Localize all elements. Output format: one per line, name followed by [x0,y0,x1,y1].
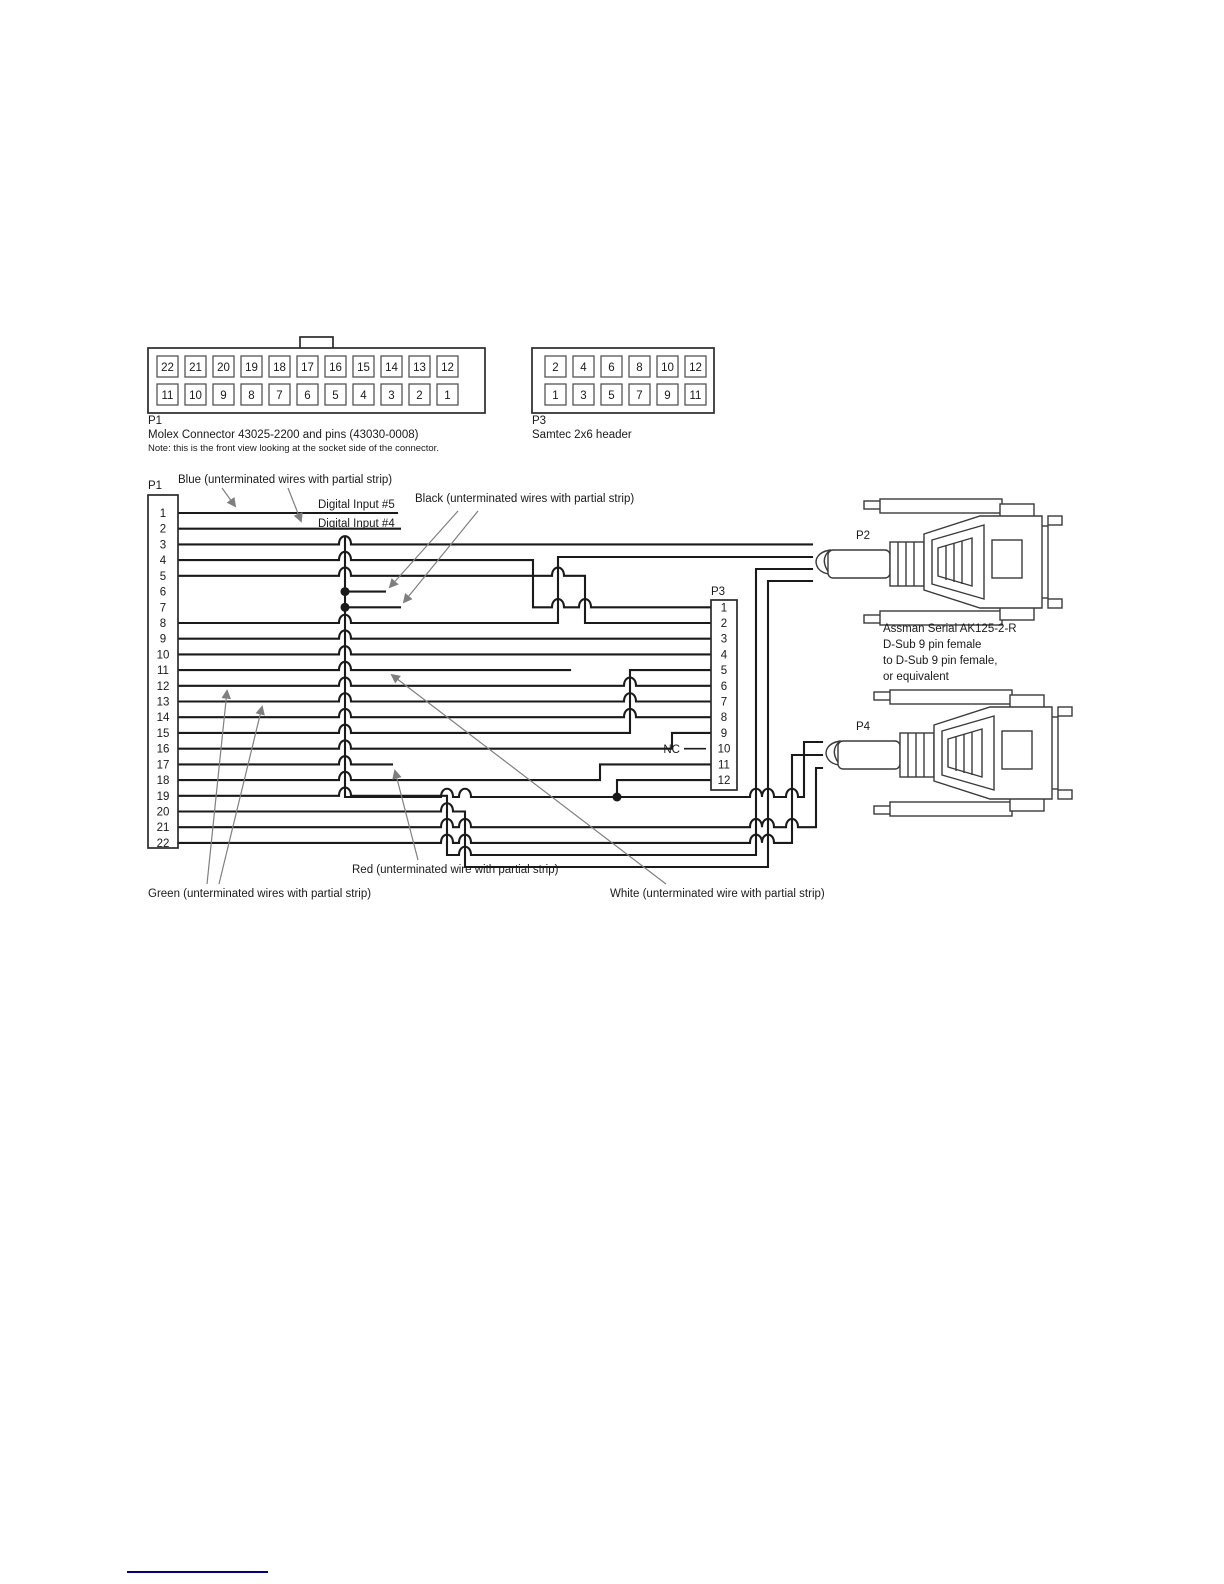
p3-pin-number: 1 [721,602,727,614]
pin-cell-number: 21 [189,362,202,374]
pin-cell-number: 7 [276,390,282,402]
p1-pin-number: 8 [160,618,166,630]
junction-dot [613,793,622,802]
p3-pin-number: 11 [718,759,730,771]
pin-cell-number: 11 [690,390,702,402]
wire-p1-10-to-p3-4 [178,646,711,654]
pin-cell-number: 10 [189,390,202,402]
green-wire-label: Green (unterminated wires with partial s… [148,888,371,900]
p1-pin-number: 21 [157,822,170,834]
wire-p1-4-to-p3-1 [178,552,711,607]
p1-pin-number: 1 [160,508,166,520]
p1-pin-number: 15 [157,728,170,740]
p1-pin-number: 3 [160,539,166,551]
junction-dot [341,587,350,596]
p1-pin-number: 17 [157,759,170,771]
pin-cell-number: 18 [273,362,286,374]
dsub-note-line4: or equivalent [883,671,950,683]
pin-cell-number: 20 [217,362,230,374]
blue-arrow-1 [222,488,235,506]
pin-cell-number: 14 [385,362,398,374]
pin-cell-number: 17 [301,362,314,374]
p1-pin-number: 2 [160,524,166,536]
p1-pin-number: 18 [157,775,170,787]
red-wire-label: Red (unterminated wire with partial stri… [352,864,559,876]
pin-cell-number: 16 [329,362,342,374]
pin-cell-number: 15 [357,362,370,374]
pin-cell-number: 12 [441,362,454,374]
p3-pin-number: 3 [721,634,727,646]
wire-p1-3-to-p2 [178,536,812,544]
dsub-note-line3: to D-Sub 9 pin female, [883,655,997,667]
pin-cell-number: 2 [552,362,558,374]
p3-pin-number: 2 [721,618,727,630]
junction-dot [341,603,350,612]
pin-cell-number: 2 [416,390,422,402]
p3-front-view: 246810121357911 P3 Samtec 2x6 header [532,348,714,441]
pin-cell-number: 13 [413,362,426,374]
p3-pin-number: 4 [721,649,728,661]
wiring-diagram: 22212019181716151413121110987654321 P1 M… [0,0,1224,1584]
pin-cell-number: 8 [248,390,254,402]
p3-pin-number: 8 [721,712,727,724]
p1-pin-number: 9 [160,634,166,646]
digital-input-5-label: Digital Input #5 [318,499,395,511]
pin-cell-number: 4 [360,390,367,402]
p3-pin-number: 5 [721,665,727,677]
p1-pin-number: 5 [160,571,166,583]
pin-cell-number: 3 [580,390,586,402]
p2-connector: P2 [816,499,1062,625]
p1-pin-number: 12 [157,681,170,693]
pin-cell-number: 4 [580,362,587,374]
p1-front-description: Molex Connector 43025-2200 and pins (430… [148,429,419,441]
pin-cell-number: 5 [608,390,614,402]
pin-cell-number: 3 [388,390,394,402]
p4-label: P4 [856,721,871,733]
p1-connector: P1 12345678910111213141516171819202122 [148,480,178,850]
wire-p1-18-to-p3-11 [178,764,711,780]
blue-arrow-2 [288,488,301,521]
pin-cell-number: 5 [332,390,338,402]
wire-bus-branch-to-p3-12 [617,780,711,797]
p1-pin-number: 11 [157,665,169,677]
red-arrow [395,771,418,860]
p1-front-view: 22212019181716151413121110987654321 P1 M… [148,337,485,454]
black-wire-label: Black (unterminated wires with partial s… [415,493,634,505]
p1-pin-number: 20 [157,807,170,819]
p3-pin-number: 12 [718,775,731,787]
p2-label: P2 [856,530,870,542]
pin-cell-number: 9 [220,390,226,402]
pin-cell-number: 7 [636,390,642,402]
pin-cell-number: 19 [245,362,258,374]
pin-cell-number: 9 [664,390,670,402]
wire-p1-16-to-p3-9 [178,733,711,749]
dsub-note-line2: D-Sub 9 pin female [883,639,981,651]
p3-connector: P3 123456789101112 NC [663,586,737,790]
p3-label: P3 [711,586,725,598]
pin-cell-number: 6 [608,362,614,374]
pin-cell-number: 8 [636,362,642,374]
blue-wire-label: Blue (unterminated wires with partial st… [178,474,392,486]
p3-pin-number: 10 [718,744,731,756]
black-arrow-2 [404,511,478,602]
p3-pin-number: 6 [721,681,727,693]
wire-p1-17-red [178,756,392,764]
p1-pin-number: 19 [157,791,170,803]
p1-pin-number: 7 [160,602,166,614]
dsub-note-line1: Assman Serial AK125-2-R [883,623,1017,635]
pin-cell-number: 22 [161,362,174,374]
document-page: 22212019181716151413121110987654321 P1 M… [0,0,1224,1584]
p4-connector: P4 [826,690,1072,816]
pin-cell-number: 1 [552,390,558,402]
p3-pin-number: 7 [721,697,727,709]
p1-pin-number: 22 [157,838,170,850]
pin-cell-number: 6 [304,390,310,402]
dsub-note: Assman Serial AK125-2-R D-Sub 9 pin fema… [883,623,1017,683]
p1-pin-number: 16 [157,744,170,756]
pin-cell-number: 10 [661,362,674,374]
p1-front-note: Note: this is the front view looking at … [148,443,439,454]
wire-p1-11-white [178,662,570,670]
nc-label: NC [663,744,680,756]
p3-front-label: P3 [532,415,546,427]
white-wire-label: White (unterminated wire with partial st… [610,888,825,900]
digital-input-4-label: Digital Input #4 [318,518,395,530]
p1-pin-number: 6 [160,587,166,599]
pin-cell-number: 12 [689,362,702,374]
p1-pin-number: 10 [157,649,170,661]
p1-pin-number: 14 [157,712,170,724]
pin-cell-number: 1 [444,390,450,402]
p1-front-label: P1 [148,415,162,427]
wire-p1-5-to-p3-2 [178,568,711,623]
pin-cell-number: 11 [162,390,174,402]
p3-pin-number: 9 [721,728,727,740]
wire-p1-9-to-p3-3 [178,630,711,638]
green-arrow-1 [207,691,227,884]
p3-front-description: Samtec 2x6 header [532,429,632,441]
p1-pin-number: 4 [160,555,167,567]
p1-pin-number: 13 [157,697,170,709]
p1-label: P1 [148,480,162,492]
